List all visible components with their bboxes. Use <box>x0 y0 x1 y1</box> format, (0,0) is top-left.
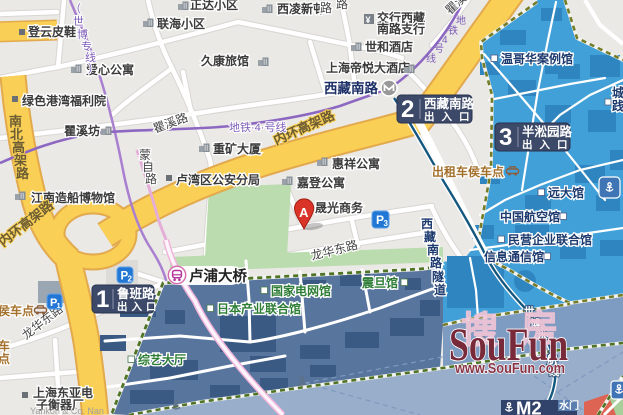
svg-text:出租车侯车点: 出租车侯车点 <box>432 164 504 179</box>
svg-text:路: 路 <box>430 255 443 270</box>
svg-text:南: 南 <box>427 242 439 257</box>
svg-text:隧: 隧 <box>432 269 444 284</box>
svg-text:藏: 藏 <box>424 229 436 244</box>
svg-text:A: A <box>299 205 309 220</box>
svg-text:水门: 水门 <box>558 399 579 412</box>
svg-text:重矿大厦: 重矿大厦 <box>213 141 262 156</box>
svg-text:正达小区: 正达小区 <box>190 0 238 12</box>
svg-text:出入口: 出入口 <box>117 300 161 313</box>
svg-text:上海帝悦大酒店: 上海帝悦大酒店 <box>326 60 410 75</box>
svg-text:践: 践 <box>612 98 623 113</box>
svg-text:晟光商务: 晟光商务 <box>315 200 364 215</box>
svg-text:西: 西 <box>421 217 433 231</box>
svg-text:民营企业联合馆: 民营企业联合馆 <box>508 232 592 247</box>
svg-text:登云皮鞋: 登云皮鞋 <box>27 24 76 39</box>
svg-text:道: 道 <box>434 282 446 297</box>
svg-text:中国航空馆: 中国航空馆 <box>500 209 560 224</box>
svg-text:（: （ <box>70 2 81 15</box>
svg-text:城: 城 <box>612 85 623 100</box>
svg-text:西藏南路: 西藏南路 <box>424 96 475 111</box>
svg-text:世和酒店: 世和酒店 <box>365 39 413 54</box>
svg-text:西藏南路: 西藏南路 <box>324 80 378 96</box>
svg-text:路: 路 <box>16 166 30 181</box>
svg-text:绿色港湾福利院: 绿色港湾福利院 <box>22 93 106 108</box>
svg-text:联海小区: 联海小区 <box>157 16 205 31</box>
svg-text:西凌新邨: 西凌新邨 <box>277 1 325 16</box>
svg-text:世: 世 <box>73 15 84 28</box>
svg-text:嘉登公寓: 嘉登公寓 <box>296 175 345 190</box>
svg-text:信息通信馆: 信息通信馆 <box>484 249 544 264</box>
svg-text:出入口: 出入口 <box>424 110 477 123</box>
svg-text:温哥华案例馆: 温哥华案例馆 <box>501 51 573 66</box>
svg-text:¥: ¥ <box>366 15 371 25</box>
svg-text:3: 3 <box>499 124 512 151</box>
svg-text:出入口: 出入口 <box>522 138 575 151</box>
svg-text:）: ） <box>88 62 99 75</box>
svg-text:瞿溪坊: 瞿溪坊 <box>64 123 100 138</box>
svg-text:线: 线 <box>85 50 96 64</box>
svg-text:铁: 铁 <box>448 24 458 37</box>
svg-text:路: 路 <box>320 0 332 15</box>
svg-text:2: 2 <box>401 96 414 123</box>
svg-text:M2: M2 <box>516 398 542 415</box>
svg-text:侯车点: 侯车点 <box>0 303 34 318</box>
svg-text:路: 路 <box>336 0 348 11</box>
svg-text:半淞园路: 半淞园路 <box>522 124 573 139</box>
svg-text:车: 车 <box>0 338 10 353</box>
svg-text:综艺大厅: 综艺大厅 <box>138 352 186 367</box>
svg-text:日本产业联合馆: 日本产业联合馆 <box>217 301 301 316</box>
svg-text:路: 路 <box>145 171 157 186</box>
svg-text:1: 1 <box>57 301 61 310</box>
svg-text:Yankon & Co. Nan: Yankon & Co. Nan <box>30 406 104 415</box>
svg-text:远大馆: 远大馆 <box>548 185 584 200</box>
svg-text:1: 1 <box>96 286 109 313</box>
svg-text:专: 专 <box>81 39 92 53</box>
svg-text:久康旅馆: 久康旅馆 <box>201 53 249 68</box>
svg-text:国家电网馆: 国家电网馆 <box>271 283 331 298</box>
svg-text:3: 3 <box>384 219 389 228</box>
svg-text:南路支行: 南路支行 <box>377 21 425 36</box>
svg-text:惠祥公寓: 惠祥公寓 <box>332 156 380 171</box>
svg-text:www.SouFun.com: www.SouFun.com <box>454 359 565 376</box>
svg-text:地铁·4·号线: 地铁·4·号线 <box>229 120 286 134</box>
svg-text:博: 博 <box>77 28 88 41</box>
svg-text:鲁班路: 鲁班路 <box>116 286 155 301</box>
svg-text:线: 线 <box>426 52 436 65</box>
svg-text:卢浦大桥: 卢浦大桥 <box>189 267 247 285</box>
svg-text:2: 2 <box>128 275 133 284</box>
svg-text:点: 点 <box>0 351 10 366</box>
svg-text:卢湾区公安分局: 卢湾区公安分局 <box>176 172 260 187</box>
svg-text:震旦馆: 震旦馆 <box>362 275 398 290</box>
